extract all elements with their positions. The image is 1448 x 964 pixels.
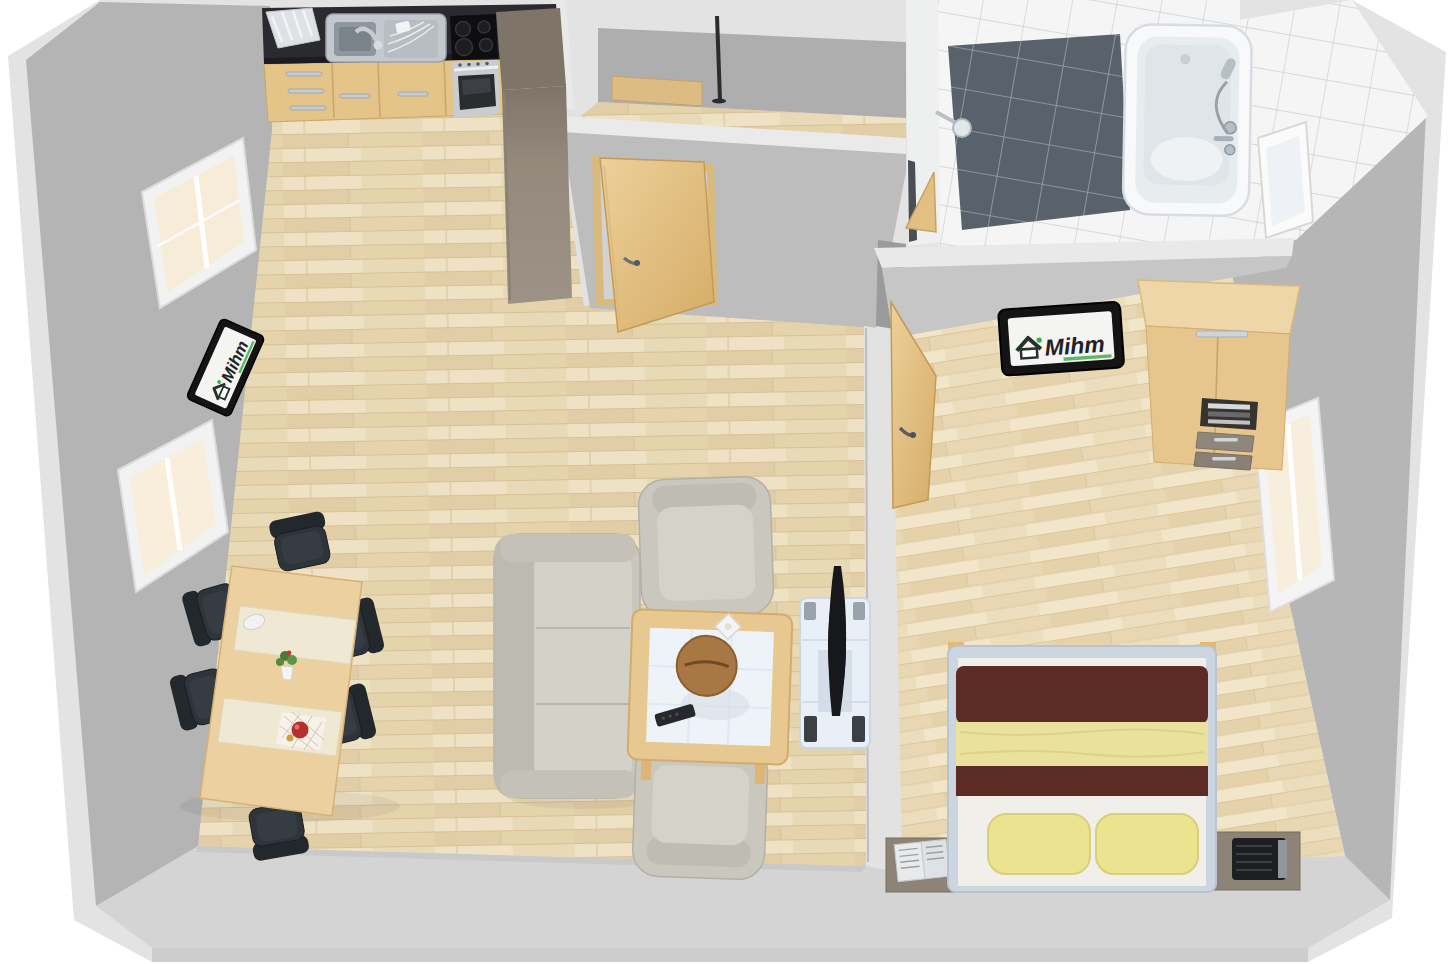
double-bed xyxy=(948,642,1216,892)
window-bathroom-right xyxy=(1258,122,1313,238)
wall-tv-mihm-bedroom xyxy=(998,301,1124,375)
oven xyxy=(452,60,500,118)
coffee-table xyxy=(627,609,793,784)
kitchen-sink xyxy=(326,14,446,62)
sofa xyxy=(494,534,640,798)
wooden-bowl xyxy=(676,635,738,697)
wardrobe xyxy=(1138,280,1300,470)
fruit-decoration xyxy=(276,712,326,750)
blanket-dark-red-strip xyxy=(956,766,1208,796)
shower-floor xyxy=(948,34,1130,230)
floor-plan-canvas: Mihm xyxy=(0,0,1448,964)
pillow xyxy=(988,814,1090,874)
wardrobe-handle xyxy=(1196,331,1248,337)
armchair xyxy=(638,476,775,619)
floor-plan-svg: Mihm xyxy=(0,0,1448,964)
open-book xyxy=(894,839,950,881)
speaker xyxy=(852,716,865,742)
nightstand-right xyxy=(1212,832,1300,890)
pillow xyxy=(1096,814,1198,874)
speaker xyxy=(804,716,817,742)
tall-cabinet xyxy=(496,8,572,304)
bathtub xyxy=(1123,24,1252,216)
blanket-dark-red xyxy=(956,666,1208,724)
wardrobe-open-shelf xyxy=(1200,398,1258,430)
cooktop xyxy=(450,14,498,60)
radio-alarm xyxy=(1232,838,1287,880)
living-room-door-open xyxy=(600,158,714,332)
blanket-yellow-band xyxy=(956,722,1208,768)
outer-wall-bevel xyxy=(152,948,1308,962)
